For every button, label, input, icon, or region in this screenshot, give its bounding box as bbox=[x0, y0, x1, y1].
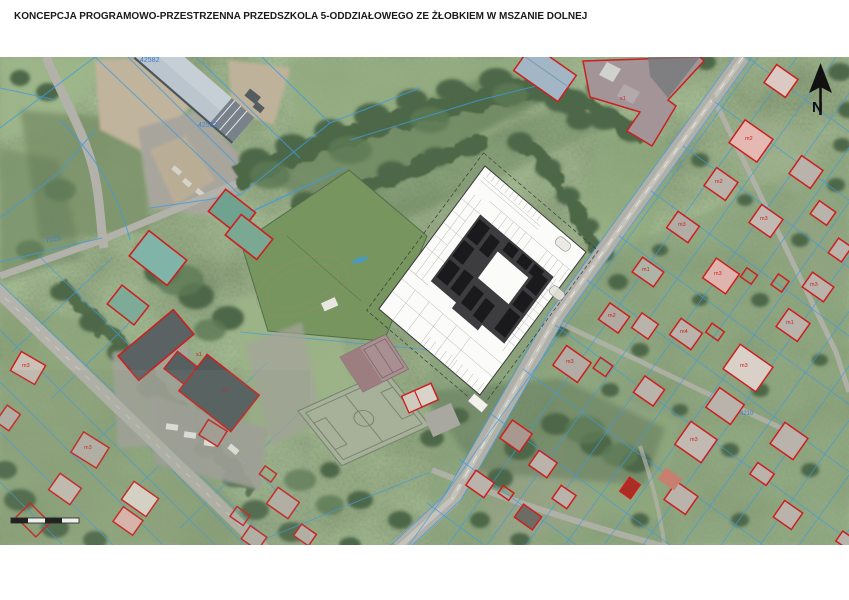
svg-text:m4: m4 bbox=[680, 329, 688, 335]
svg-text:m2: m2 bbox=[608, 313, 616, 319]
svg-text:m3: m3 bbox=[760, 216, 768, 222]
svg-text:m1: m1 bbox=[642, 267, 650, 273]
svg-text:m3: m3 bbox=[22, 363, 30, 369]
svg-text:m2: m2 bbox=[715, 179, 723, 185]
svg-text:42582: 42582 bbox=[140, 57, 160, 64]
svg-text:m3: m3 bbox=[714, 271, 722, 277]
svg-text:KONCEPCJA PROGRAMOWO-PRZESTRZE: KONCEPCJA PROGRAMOWO-PRZESTRZENNA PRZEDS… bbox=[14, 9, 587, 22]
svg-text:s1: s1 bbox=[620, 96, 626, 102]
svg-text:m3: m3 bbox=[678, 222, 686, 228]
svg-text:m3: m3 bbox=[690, 437, 698, 443]
svg-text:m3: m3 bbox=[810, 282, 818, 288]
svg-text:42582: 42582 bbox=[198, 122, 218, 129]
svg-text:m2: m2 bbox=[745, 136, 753, 142]
svg-text:m3: m3 bbox=[566, 359, 574, 365]
svg-text:4210: 4210 bbox=[740, 411, 754, 417]
svg-text:m1: m1 bbox=[786, 320, 794, 326]
svg-text:N: N bbox=[812, 99, 823, 116]
svg-text:m3: m3 bbox=[740, 363, 748, 369]
svg-text:s1: s1 bbox=[196, 352, 202, 358]
